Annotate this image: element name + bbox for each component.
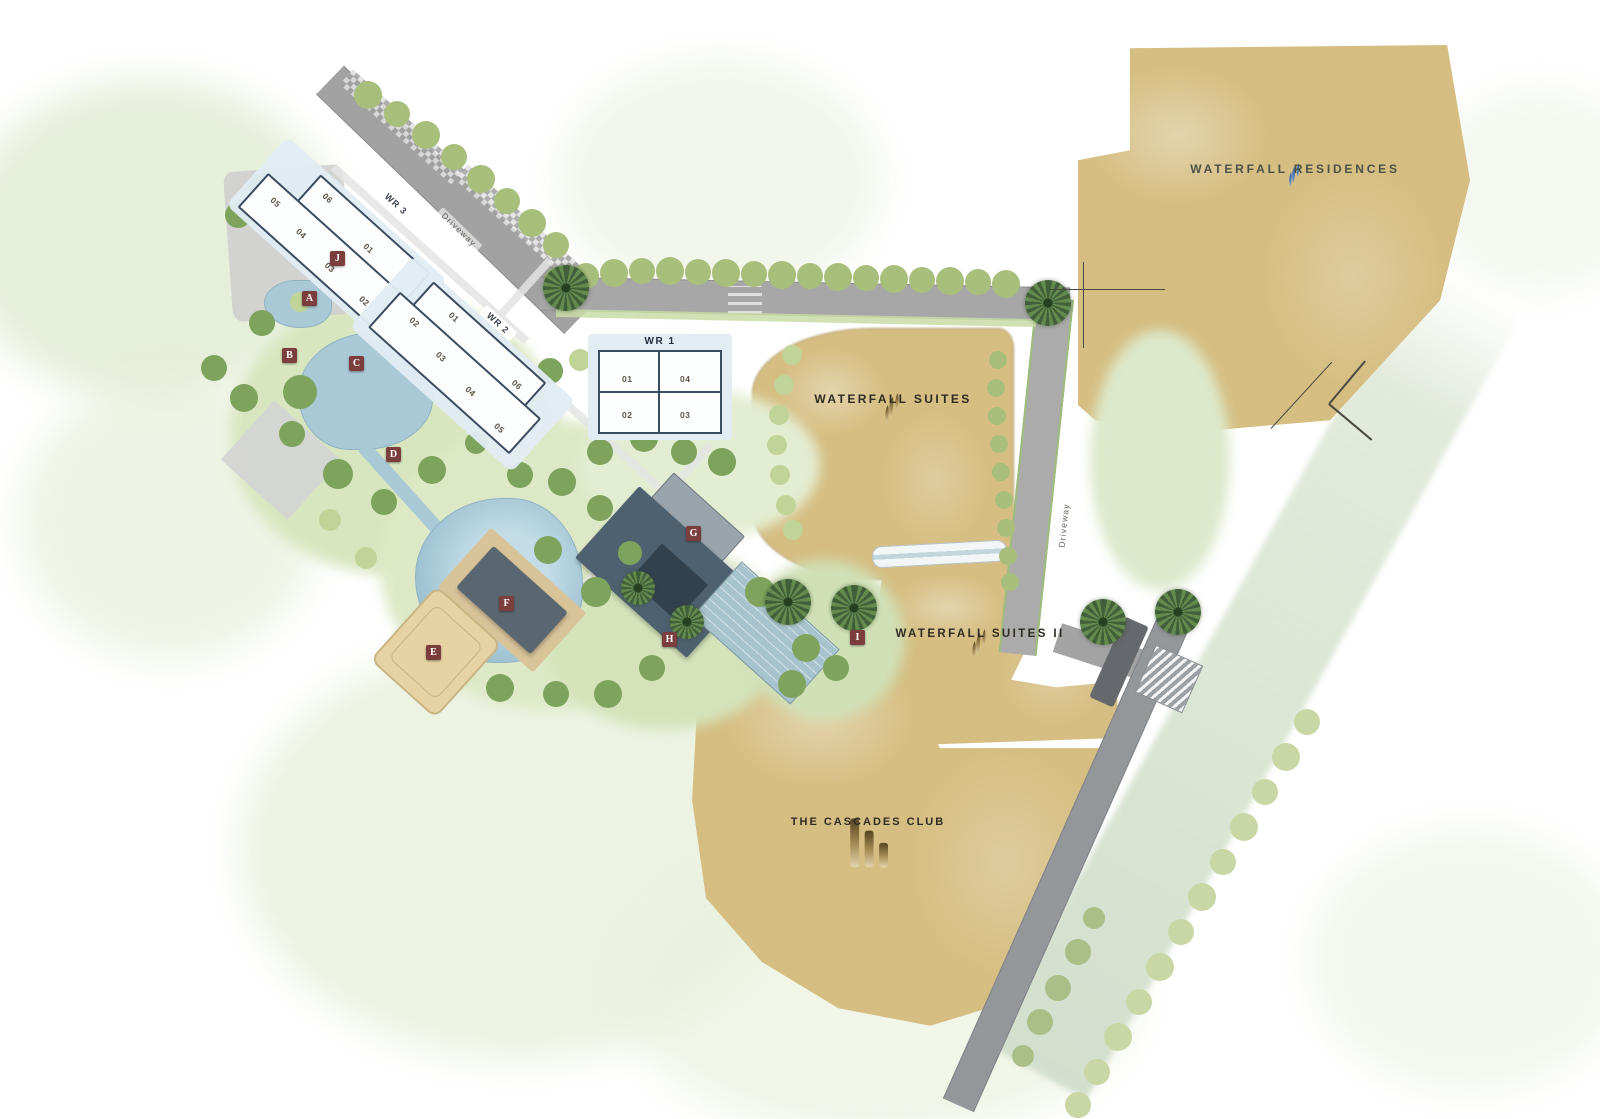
plot-label: WATERFALL SUITES: [814, 392, 971, 406]
palm-tree-icon: [1155, 589, 1201, 635]
unit-label: 01: [622, 374, 632, 384]
amenity-marker-f[interactable]: F: [499, 596, 514, 611]
palm-tree-icon: [621, 571, 655, 605]
plot-label: WATERFALL SUITES II: [895, 628, 1064, 640]
building-label: WR 1: [588, 336, 732, 347]
unit-label: 04: [680, 374, 690, 384]
unit-label: 02: [622, 410, 632, 420]
palm-tree-icon: [543, 265, 589, 311]
amenity-marker-e[interactable]: E: [426, 645, 441, 660]
survey-line: [1083, 262, 1084, 348]
garden-lawn: [1090, 330, 1230, 590]
amenity-marker-i[interactable]: I: [850, 630, 865, 645]
amenity-marker-h[interactable]: H: [662, 632, 677, 647]
amenity-marker-g[interactable]: G: [686, 526, 701, 541]
master-plan-canvas: 05 06 04 01 03 02 01 06 02 03 04 05 WR 1…: [0, 0, 1600, 1119]
watercolor-wash: [560, 60, 880, 300]
crosswalk: [728, 286, 762, 314]
plot-label: WATERFALL RESIDENCES: [1190, 162, 1400, 176]
amenity-marker-c[interactable]: C: [349, 356, 364, 371]
building-footprint: [598, 350, 722, 434]
amenity-marker-b[interactable]: B: [282, 348, 297, 363]
palm-tree-icon: [765, 579, 811, 625]
garden-trees: [0, 0, 26, 26]
driveway-label: Driveway: [1056, 498, 1072, 553]
amenity-marker-d[interactable]: D: [386, 447, 401, 462]
survey-line: [1050, 289, 1165, 290]
amenity-marker-a[interactable]: A: [302, 291, 317, 306]
palm-tree-icon: [1080, 599, 1126, 645]
watercolor-wash: [1310, 830, 1600, 1090]
plot-label: THE CASCADES CLUB: [791, 816, 945, 828]
unit-label: 03: [680, 410, 690, 420]
palm-tree-icon: [831, 585, 877, 631]
building-wr1[interactable]: WR 1 01 04 02 03: [588, 334, 732, 440]
palm-tree-icon: [1025, 280, 1071, 326]
amenity-marker-j[interactable]: J: [330, 251, 345, 266]
